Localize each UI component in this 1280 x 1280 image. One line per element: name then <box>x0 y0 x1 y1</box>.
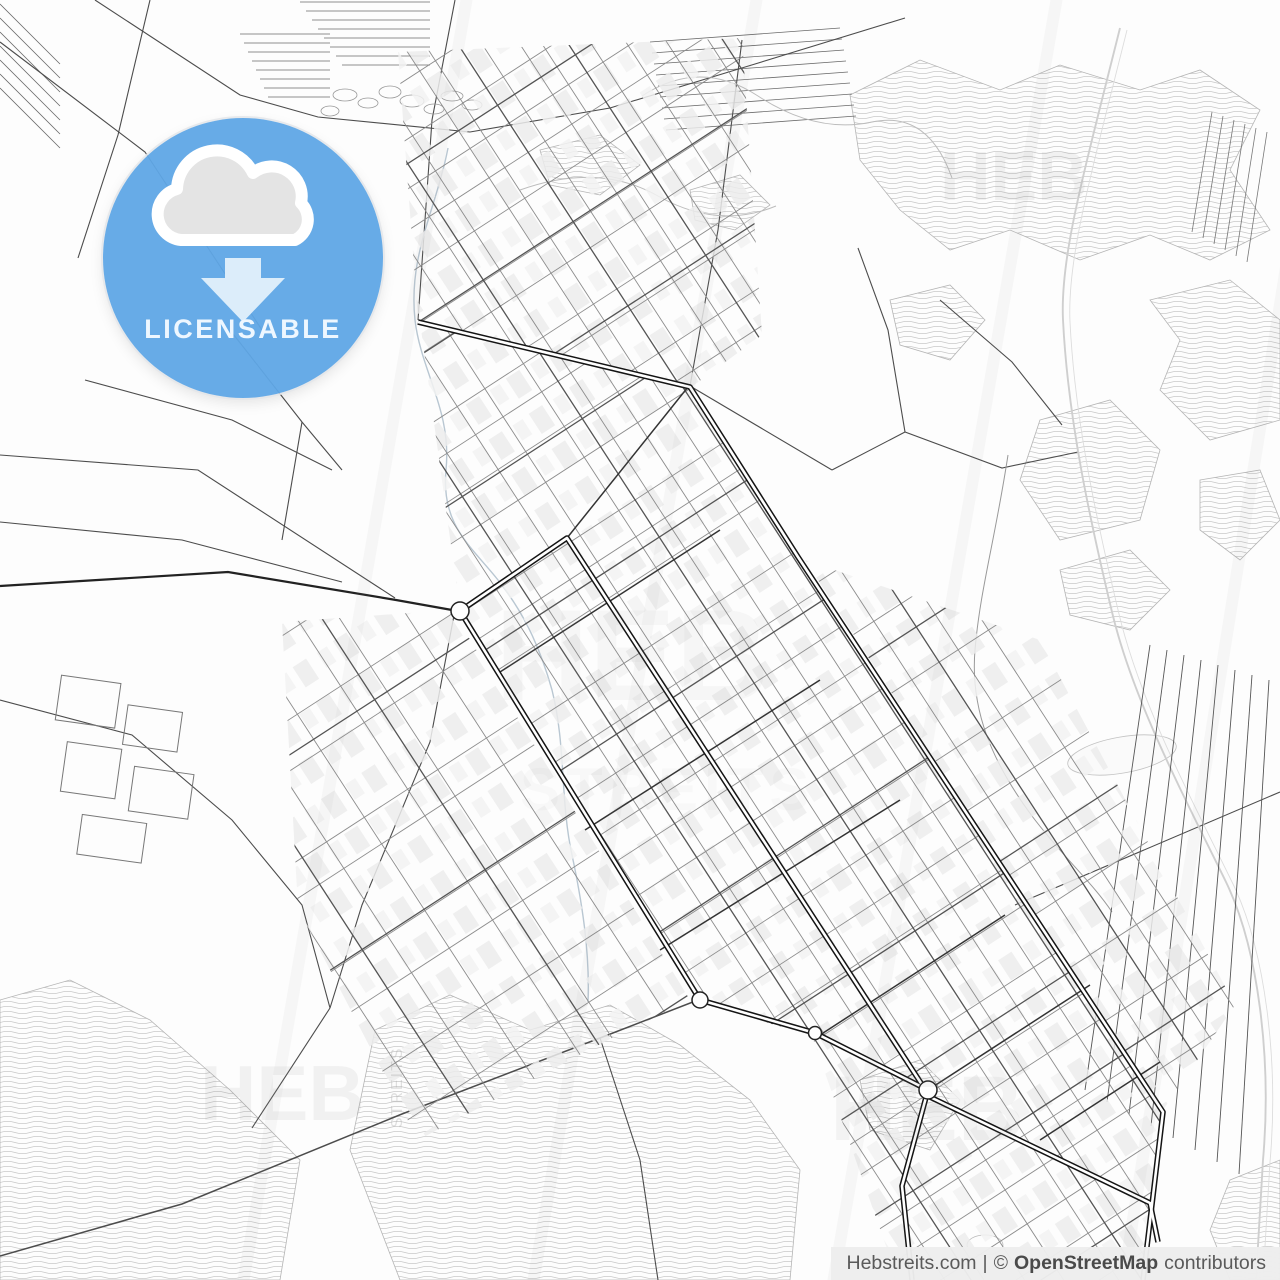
watermark-text: STREITS <box>520 756 815 823</box>
attribution-site: Hebstreits.com <box>847 1252 977 1275</box>
cloud-download-icon <box>103 118 383 398</box>
download-arrow-icon <box>201 258 285 322</box>
watermark-text: HEB <box>830 1058 1024 1160</box>
watermark-subtext: STREITS <box>389 1046 406 1128</box>
attribution-bar: Hebstreits.com | © OpenStreetMap contrib… <box>831 1247 1280 1280</box>
licensable-badge: LICENSABLE <box>103 118 383 398</box>
map-poster: HEB HEB STREITS HEB STREITS HEB LICENSAB… <box>0 0 1280 1280</box>
watermark-text: HEB <box>200 1049 365 1137</box>
attribution-map-source: OpenStreetMap <box>1014 1252 1158 1275</box>
suburb-blocks <box>37 675 205 868</box>
watermark-text: HEB <box>495 582 769 728</box>
badge-label: LICENSABLE <box>103 314 383 345</box>
attribution-copyright: © <box>994 1252 1008 1275</box>
cloud-icon <box>158 150 308 240</box>
watermark-text: HEB <box>940 137 1088 215</box>
attribution-suffix: contributors <box>1164 1252 1266 1275</box>
attribution-divider: | <box>983 1252 988 1275</box>
